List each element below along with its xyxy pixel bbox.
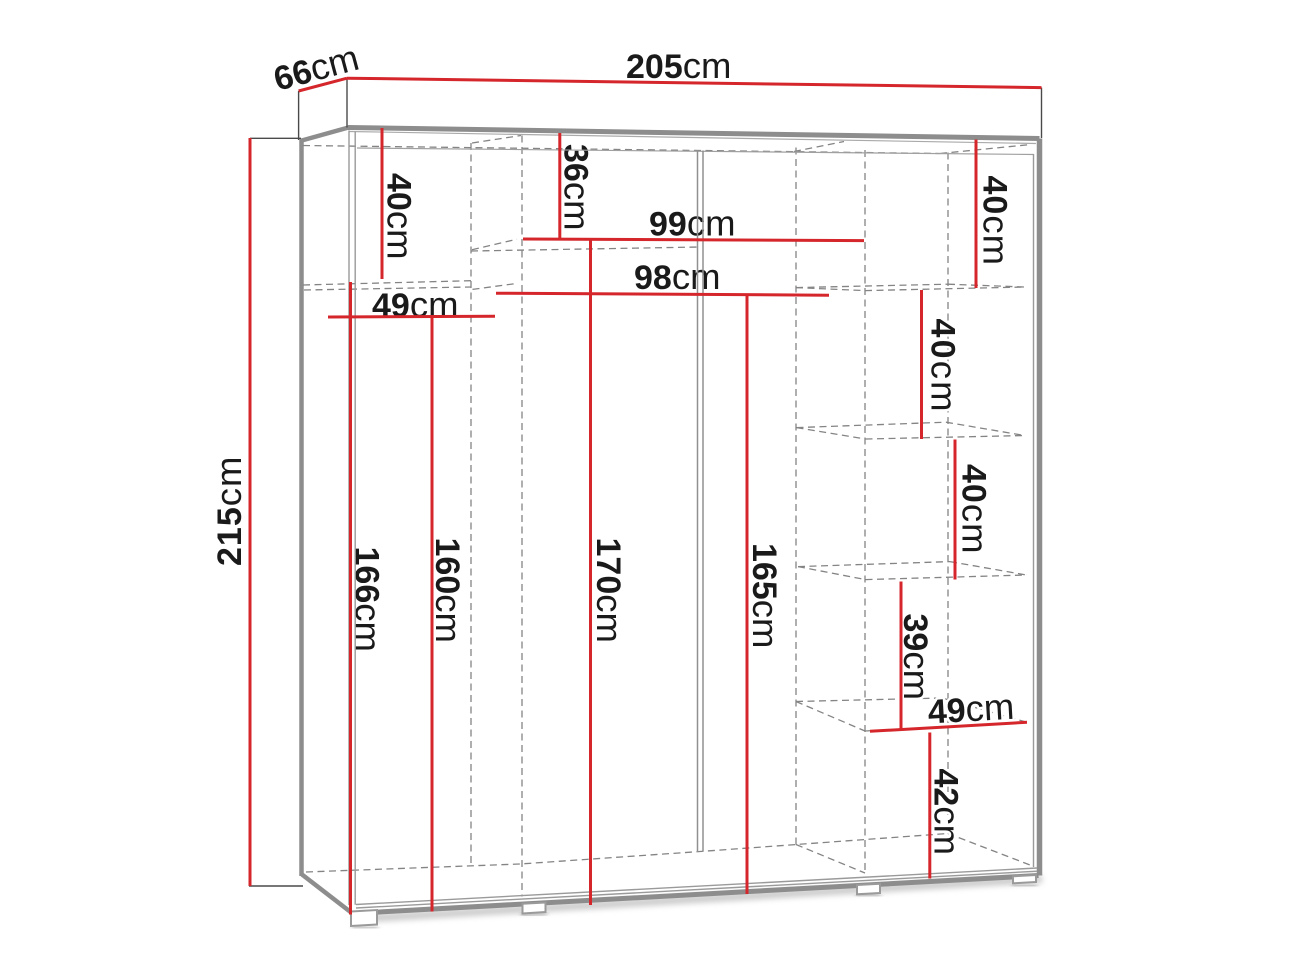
svg-text:40cm: 40cm <box>976 176 1017 266</box>
svg-text:40cm: 40cm <box>379 173 420 259</box>
svg-text:160cm: 160cm <box>428 538 469 643</box>
svg-text:42cm: 42cm <box>927 769 968 855</box>
svg-text:166cm: 166cm <box>347 547 388 652</box>
svg-text:165cm: 165cm <box>745 543 786 648</box>
svg-text:98cm: 98cm <box>634 256 720 297</box>
svg-text:170cm: 170cm <box>589 538 630 643</box>
svg-text:215cm: 215cm <box>208 456 249 566</box>
svg-text:49cm: 49cm <box>372 284 458 325</box>
svg-text:99cm: 99cm <box>649 202 735 243</box>
svg-text:205cm: 205cm <box>626 45 731 86</box>
svg-text:40cm: 40cm <box>955 464 996 554</box>
svg-text:40cm: 40cm <box>924 319 965 414</box>
svg-text:36cm: 36cm <box>557 144 598 230</box>
